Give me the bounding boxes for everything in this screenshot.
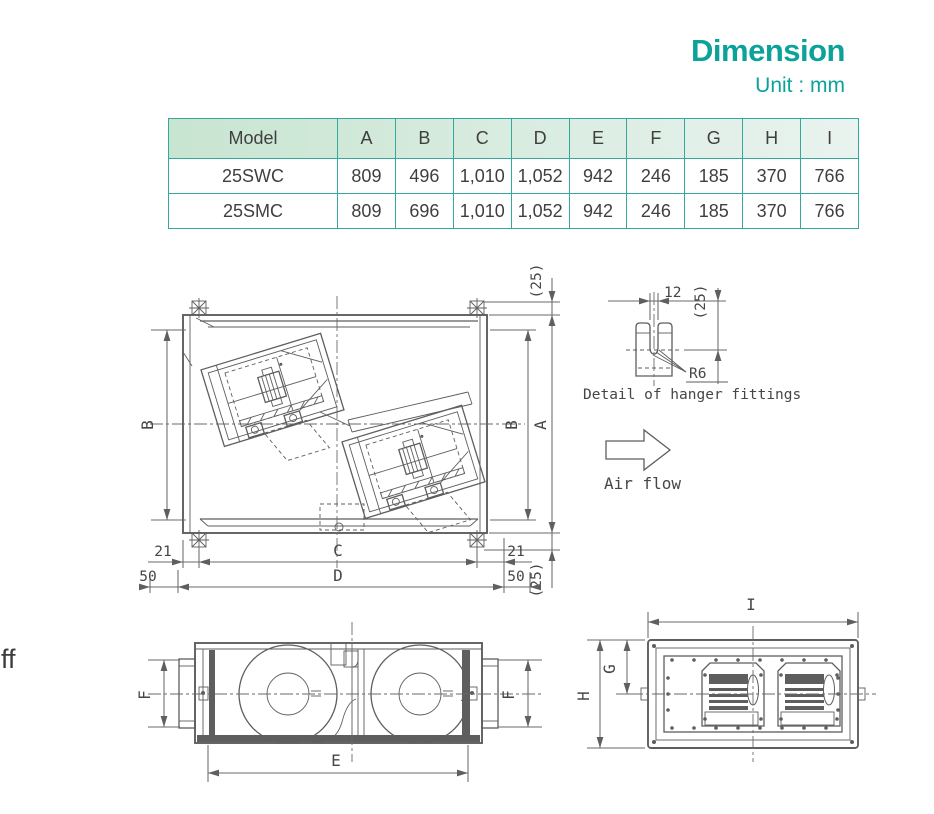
dim-label-12: 12 [664, 285, 681, 301]
fan-unit-1 [201, 333, 353, 477]
col-header-b: B [395, 119, 453, 159]
cell-value: 809 [338, 194, 396, 229]
hanger-bracket [189, 530, 209, 550]
hanger-bracket [467, 298, 487, 318]
dim-label-b-right: B [502, 420, 521, 430]
dim-label-a: A [531, 420, 550, 430]
col-header-f: F [627, 119, 685, 159]
cell-value: 1,052 [511, 159, 569, 194]
cell-value: 696 [395, 194, 453, 229]
cell-value: 1,010 [453, 159, 511, 194]
col-header-a: A [338, 119, 396, 159]
air-flow-symbol: Air flow [604, 430, 681, 493]
dimension-page: Dimension Unit : mm Model A B C D E F G … [0, 0, 934, 814]
cell-model: 25SWC [169, 159, 338, 194]
col-header-c: C [453, 119, 511, 159]
cell-value: 185 [685, 159, 743, 194]
col-header-d: D [511, 119, 569, 159]
cell-value: 185 [685, 194, 743, 229]
dim-label-25-detail: (25) [693, 285, 709, 320]
dimension-table: Model A B C D E F G H I 25SWC 809 496 1,… [168, 118, 859, 229]
dim-label-c: C [333, 541, 343, 560]
dim-label-25-bottom: (25) [529, 563, 545, 598]
radius-label-r6: R6 [689, 366, 706, 382]
side-view-drawing: I H G [574, 595, 876, 762]
hanger-detail-caption: Detail of hanger fittings [583, 387, 801, 403]
col-header-i: I [801, 119, 859, 159]
dim-label-f-right: F [499, 690, 518, 700]
hanger-detail-drawing: 12 (25) R6 Detail of hanger fittings [583, 285, 801, 403]
col-header-model: Model [169, 119, 338, 159]
air-flow-arrow-icon [606, 430, 670, 470]
dim-label-d: D [333, 566, 343, 585]
front-view-drawing: F F E [135, 622, 542, 782]
dim-label-b-left: B [138, 420, 157, 430]
fan-wheel-module-2 [778, 663, 840, 726]
hanger-bracket [467, 530, 487, 550]
dim-label-50-left: 50 [139, 569, 156, 585]
technical-drawing: B B (25) (25) A [0, 250, 934, 814]
col-header-e: E [569, 119, 627, 159]
cell-value: 809 [338, 159, 396, 194]
cell-value: 246 [627, 194, 685, 229]
dim-label-f-left: F [135, 690, 154, 700]
hanger-bracket [189, 298, 209, 318]
table-row-25smc: 25SMC 809 696 1,010 1,052 942 246 185 37… [169, 194, 859, 229]
dim-label-h: H [574, 691, 593, 701]
dim-label-i: I [746, 595, 756, 614]
dim-label-g: G [600, 664, 619, 674]
cell-value: 942 [569, 194, 627, 229]
unit-label: Unit : mm [0, 74, 845, 98]
cell-value: 1,010 [453, 194, 511, 229]
fan-unit-2 [342, 405, 494, 549]
dim-label-21-right: 21 [507, 544, 524, 560]
dim-label-e: E [331, 751, 341, 770]
table-header-row: Model A B C D E F G H I [169, 119, 859, 159]
dim-label-21-left: 21 [154, 544, 171, 560]
cell-value: 942 [569, 159, 627, 194]
col-header-g: G [685, 119, 743, 159]
cell-value: 1,052 [511, 194, 569, 229]
page-title: Dimension [0, 33, 845, 69]
cell-value: 766 [801, 159, 859, 194]
cell-value: 246 [627, 159, 685, 194]
dim-label-50-right: 50 [507, 569, 524, 585]
air-flow-label: Air flow [604, 474, 681, 493]
table-row-25swc: 25SWC 809 496 1,010 1,052 942 246 185 37… [169, 159, 859, 194]
top-view-drawing: B B (25) (25) A [138, 264, 560, 598]
fan-wheel-module-1 [702, 663, 764, 726]
cell-value: 496 [395, 159, 453, 194]
dim-label-25-top: (25) [529, 264, 545, 299]
cell-model: 25SMC [169, 194, 338, 229]
cell-value: 370 [743, 194, 801, 229]
cell-value: 766 [801, 194, 859, 229]
col-header-h: H [743, 119, 801, 159]
cell-value: 370 [743, 159, 801, 194]
